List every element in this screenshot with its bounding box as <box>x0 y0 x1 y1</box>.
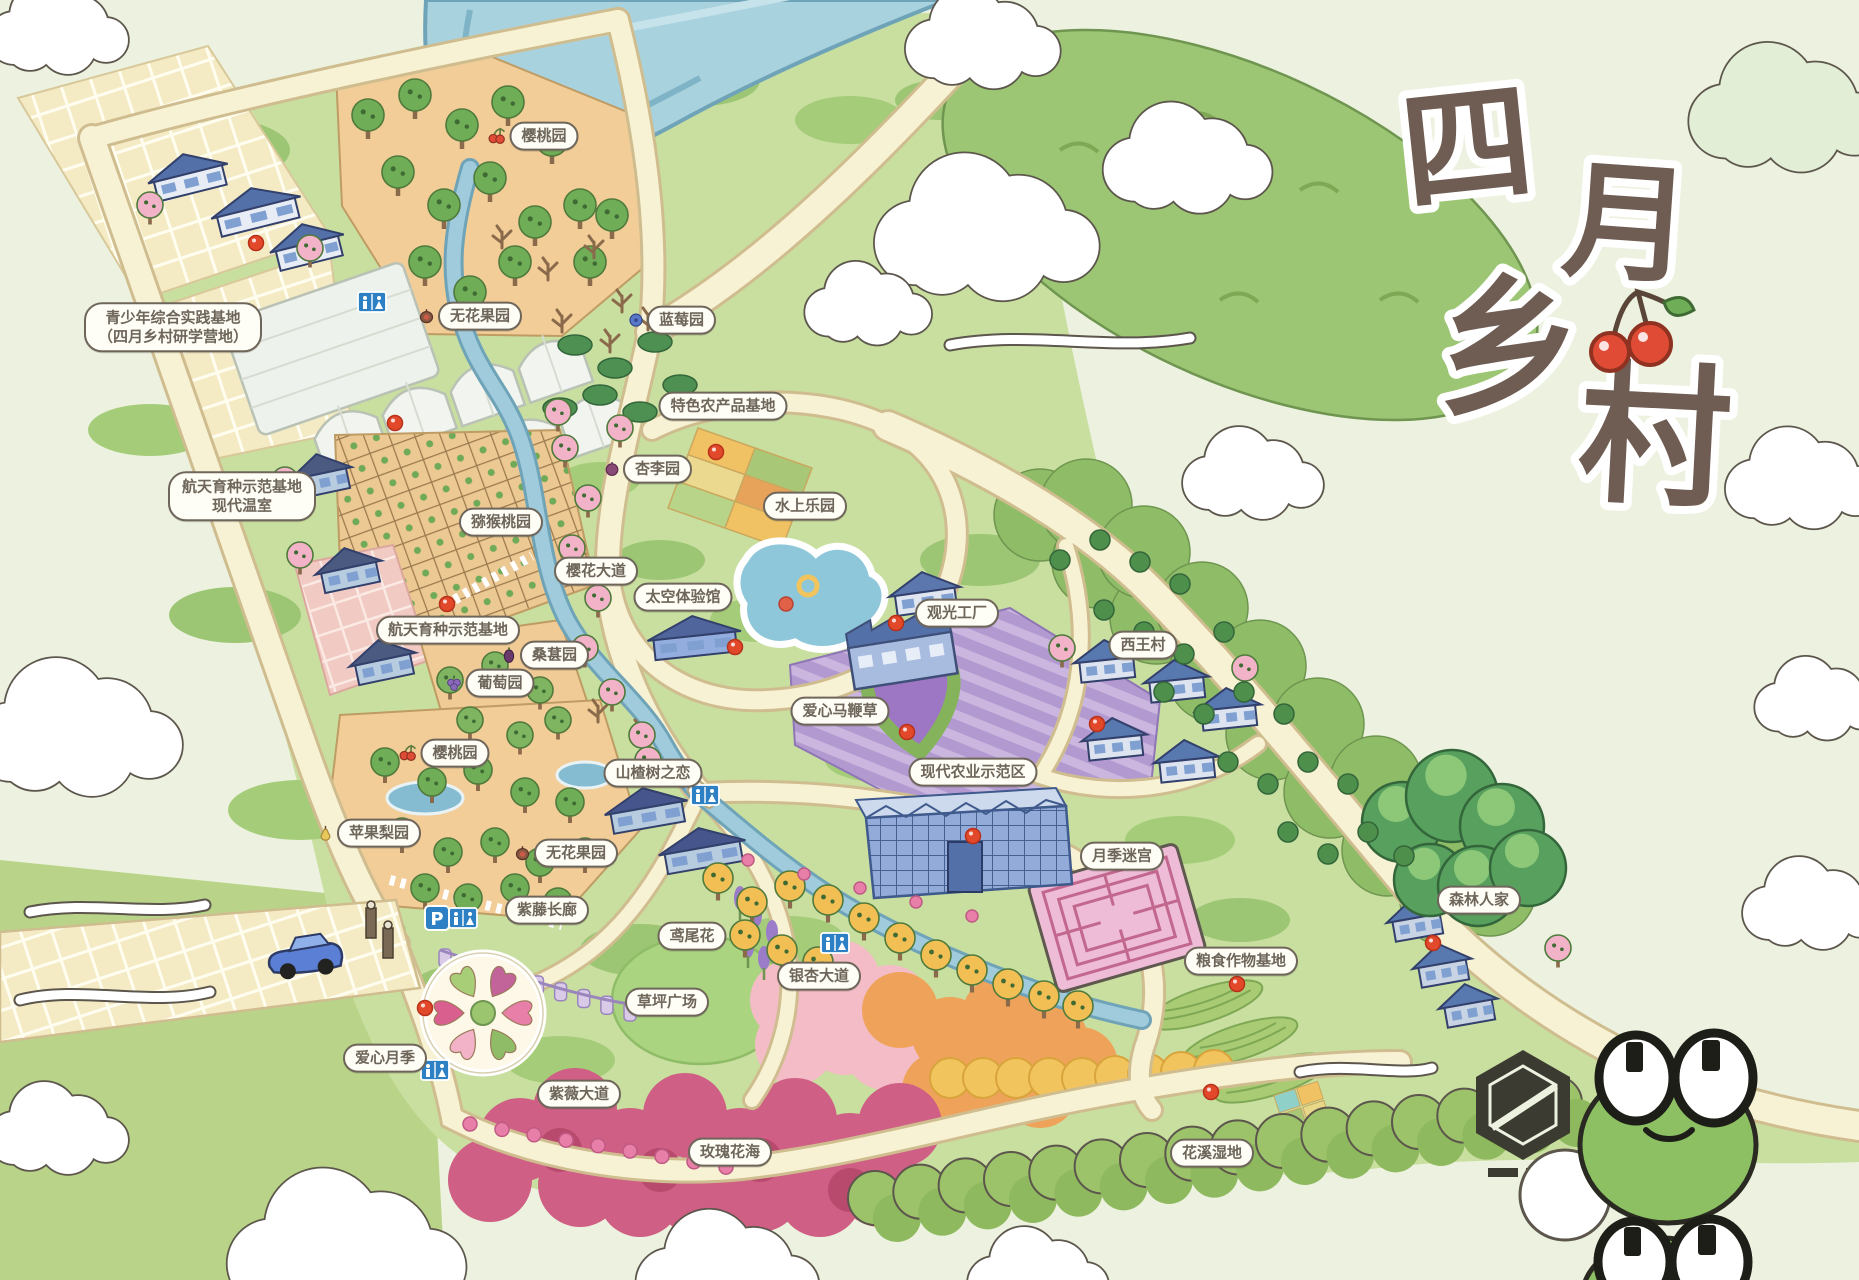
modern-agri-glass-building <box>856 788 1072 898</box>
red-location-marker <box>388 416 403 431</box>
red-location-marker <box>728 640 743 655</box>
red-location-marker <box>1204 1085 1219 1100</box>
red-location-marker <box>1426 936 1441 951</box>
red-location-marker <box>709 445 724 460</box>
toilet-icon <box>821 933 849 953</box>
red-location-marker <box>900 725 915 740</box>
red-location-marker <box>966 829 981 844</box>
red-location-marker <box>1090 717 1105 732</box>
parking-icon: P <box>425 906 449 930</box>
toilet-icon <box>449 908 477 928</box>
map-artwork: P 四 月 乡 村 <box>0 0 1859 1280</box>
red-location-marker <box>1230 977 1245 992</box>
toilet-icon <box>358 292 386 312</box>
red-location-marker <box>889 616 904 631</box>
red-location-marker <box>249 236 264 251</box>
title-char-1: 四 <box>1395 65 1540 230</box>
title-char-3: 乡 <box>1429 256 1589 438</box>
svg-text:P: P <box>430 909 443 930</box>
heart-rose-garden <box>423 953 543 1073</box>
toilet-icon <box>691 785 719 805</box>
red-location-marker <box>440 597 455 612</box>
title-char-2: 月 <box>1558 146 1696 304</box>
illustrated-park-map: P 四 月 乡 村 樱桃园无花果园蓝莓 <box>0 0 1859 1280</box>
red-location-marker <box>418 1001 433 1016</box>
title-char-4: 村 <box>1574 345 1735 530</box>
toilet-icon <box>421 1060 449 1080</box>
